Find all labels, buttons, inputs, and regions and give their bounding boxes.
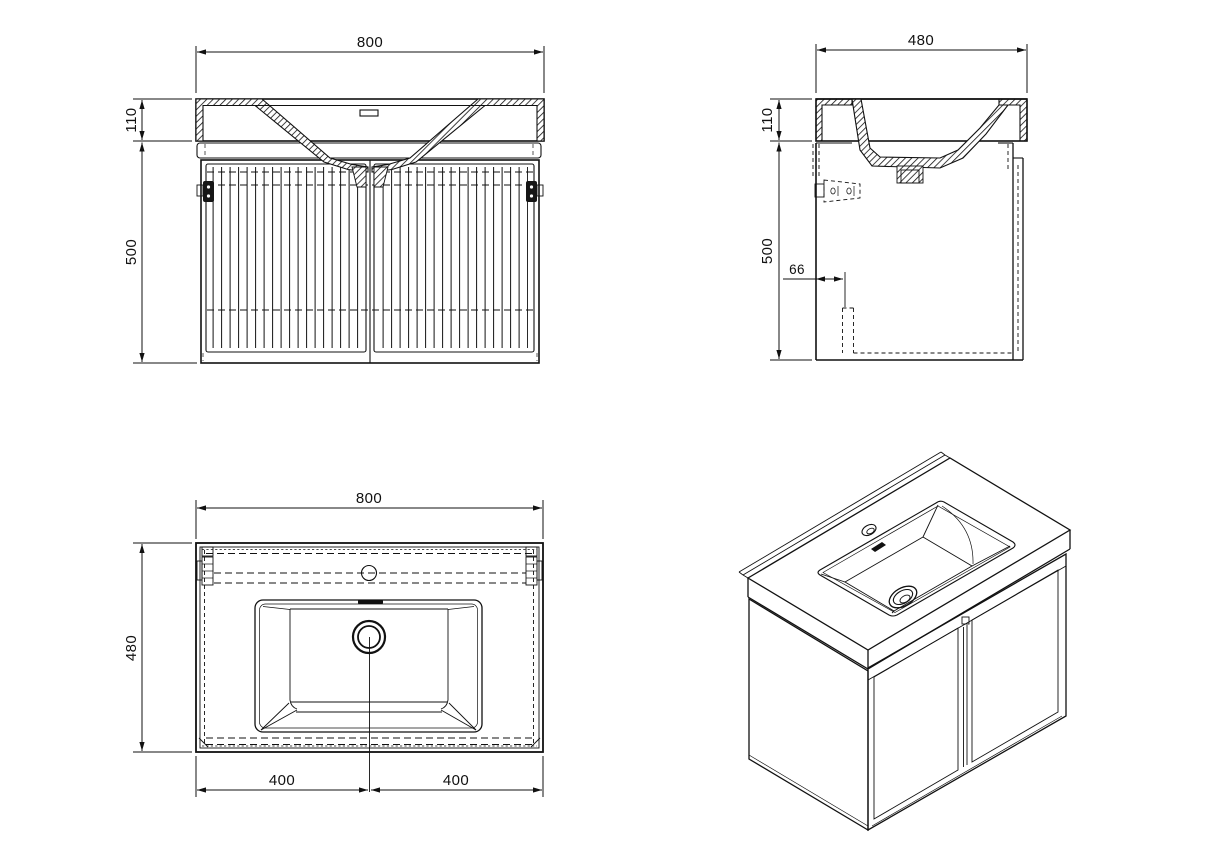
dim-side-offset: 66: [789, 262, 805, 277]
front-door-right-flutes: [379, 167, 528, 348]
dim-top-right-half: 400: [443, 772, 469, 789]
technical-drawing-canvas: 800 110 500: [0, 0, 1224, 866]
dim-side-top-height: 110: [759, 107, 776, 132]
dim-top-width: 800: [356, 490, 382, 507]
side-view: 480 110 500 66: [759, 32, 1027, 360]
top-overflow-slot: [358, 600, 383, 604]
side-top-front-edge: [999, 99, 1027, 141]
iso-countertop: [739, 452, 1070, 669]
iso-faucet-hole: [860, 522, 878, 538]
isometric-view: [739, 452, 1070, 830]
dim-front-top-height: 110: [123, 107, 140, 132]
side-basin-wall: [852, 99, 1008, 168]
iso-backsplash-lip: [739, 452, 950, 578]
top-wall-bracket-right: [526, 547, 542, 585]
dim-front-cabinet-height: 500: [123, 239, 140, 265]
side-top-back-edge: [816, 99, 852, 141]
top-wall-bracket-left: [197, 547, 213, 585]
side-bottom-cutout: [843, 272, 854, 353]
front-basin-wall-left: [196, 99, 368, 172]
front-hinge-right: [526, 181, 543, 202]
side-countertop-section: [816, 99, 1027, 183]
side-dimensions: 480 110 500 66: [759, 32, 1027, 360]
vanity-drawing: 800 110 500: [0, 0, 1224, 866]
front-overflow-slot: [360, 110, 378, 116]
front-door-left-flutes: [212, 167, 361, 348]
dim-top-left-half: 400: [269, 772, 295, 789]
dim-side-depth: 480: [908, 32, 934, 49]
front-basin-wall-right: [372, 99, 544, 172]
front-cabinet: [201, 160, 539, 363]
front-sink-apron: [197, 143, 541, 158]
front-view: 800 110 500: [123, 34, 544, 363]
side-wall-bracket: [815, 180, 860, 202]
iso-cabinet: [749, 554, 1066, 830]
dim-front-width: 800: [357, 34, 383, 51]
top-view: 800 480 400 400: [123, 490, 543, 797]
top-basin: [255, 600, 482, 792]
top-dimensions: 800 480 400 400: [123, 490, 543, 797]
dim-top-depth: 480: [123, 635, 140, 661]
dim-side-cabinet-height: 500: [759, 238, 776, 264]
front-hinge-left: [197, 181, 214, 202]
